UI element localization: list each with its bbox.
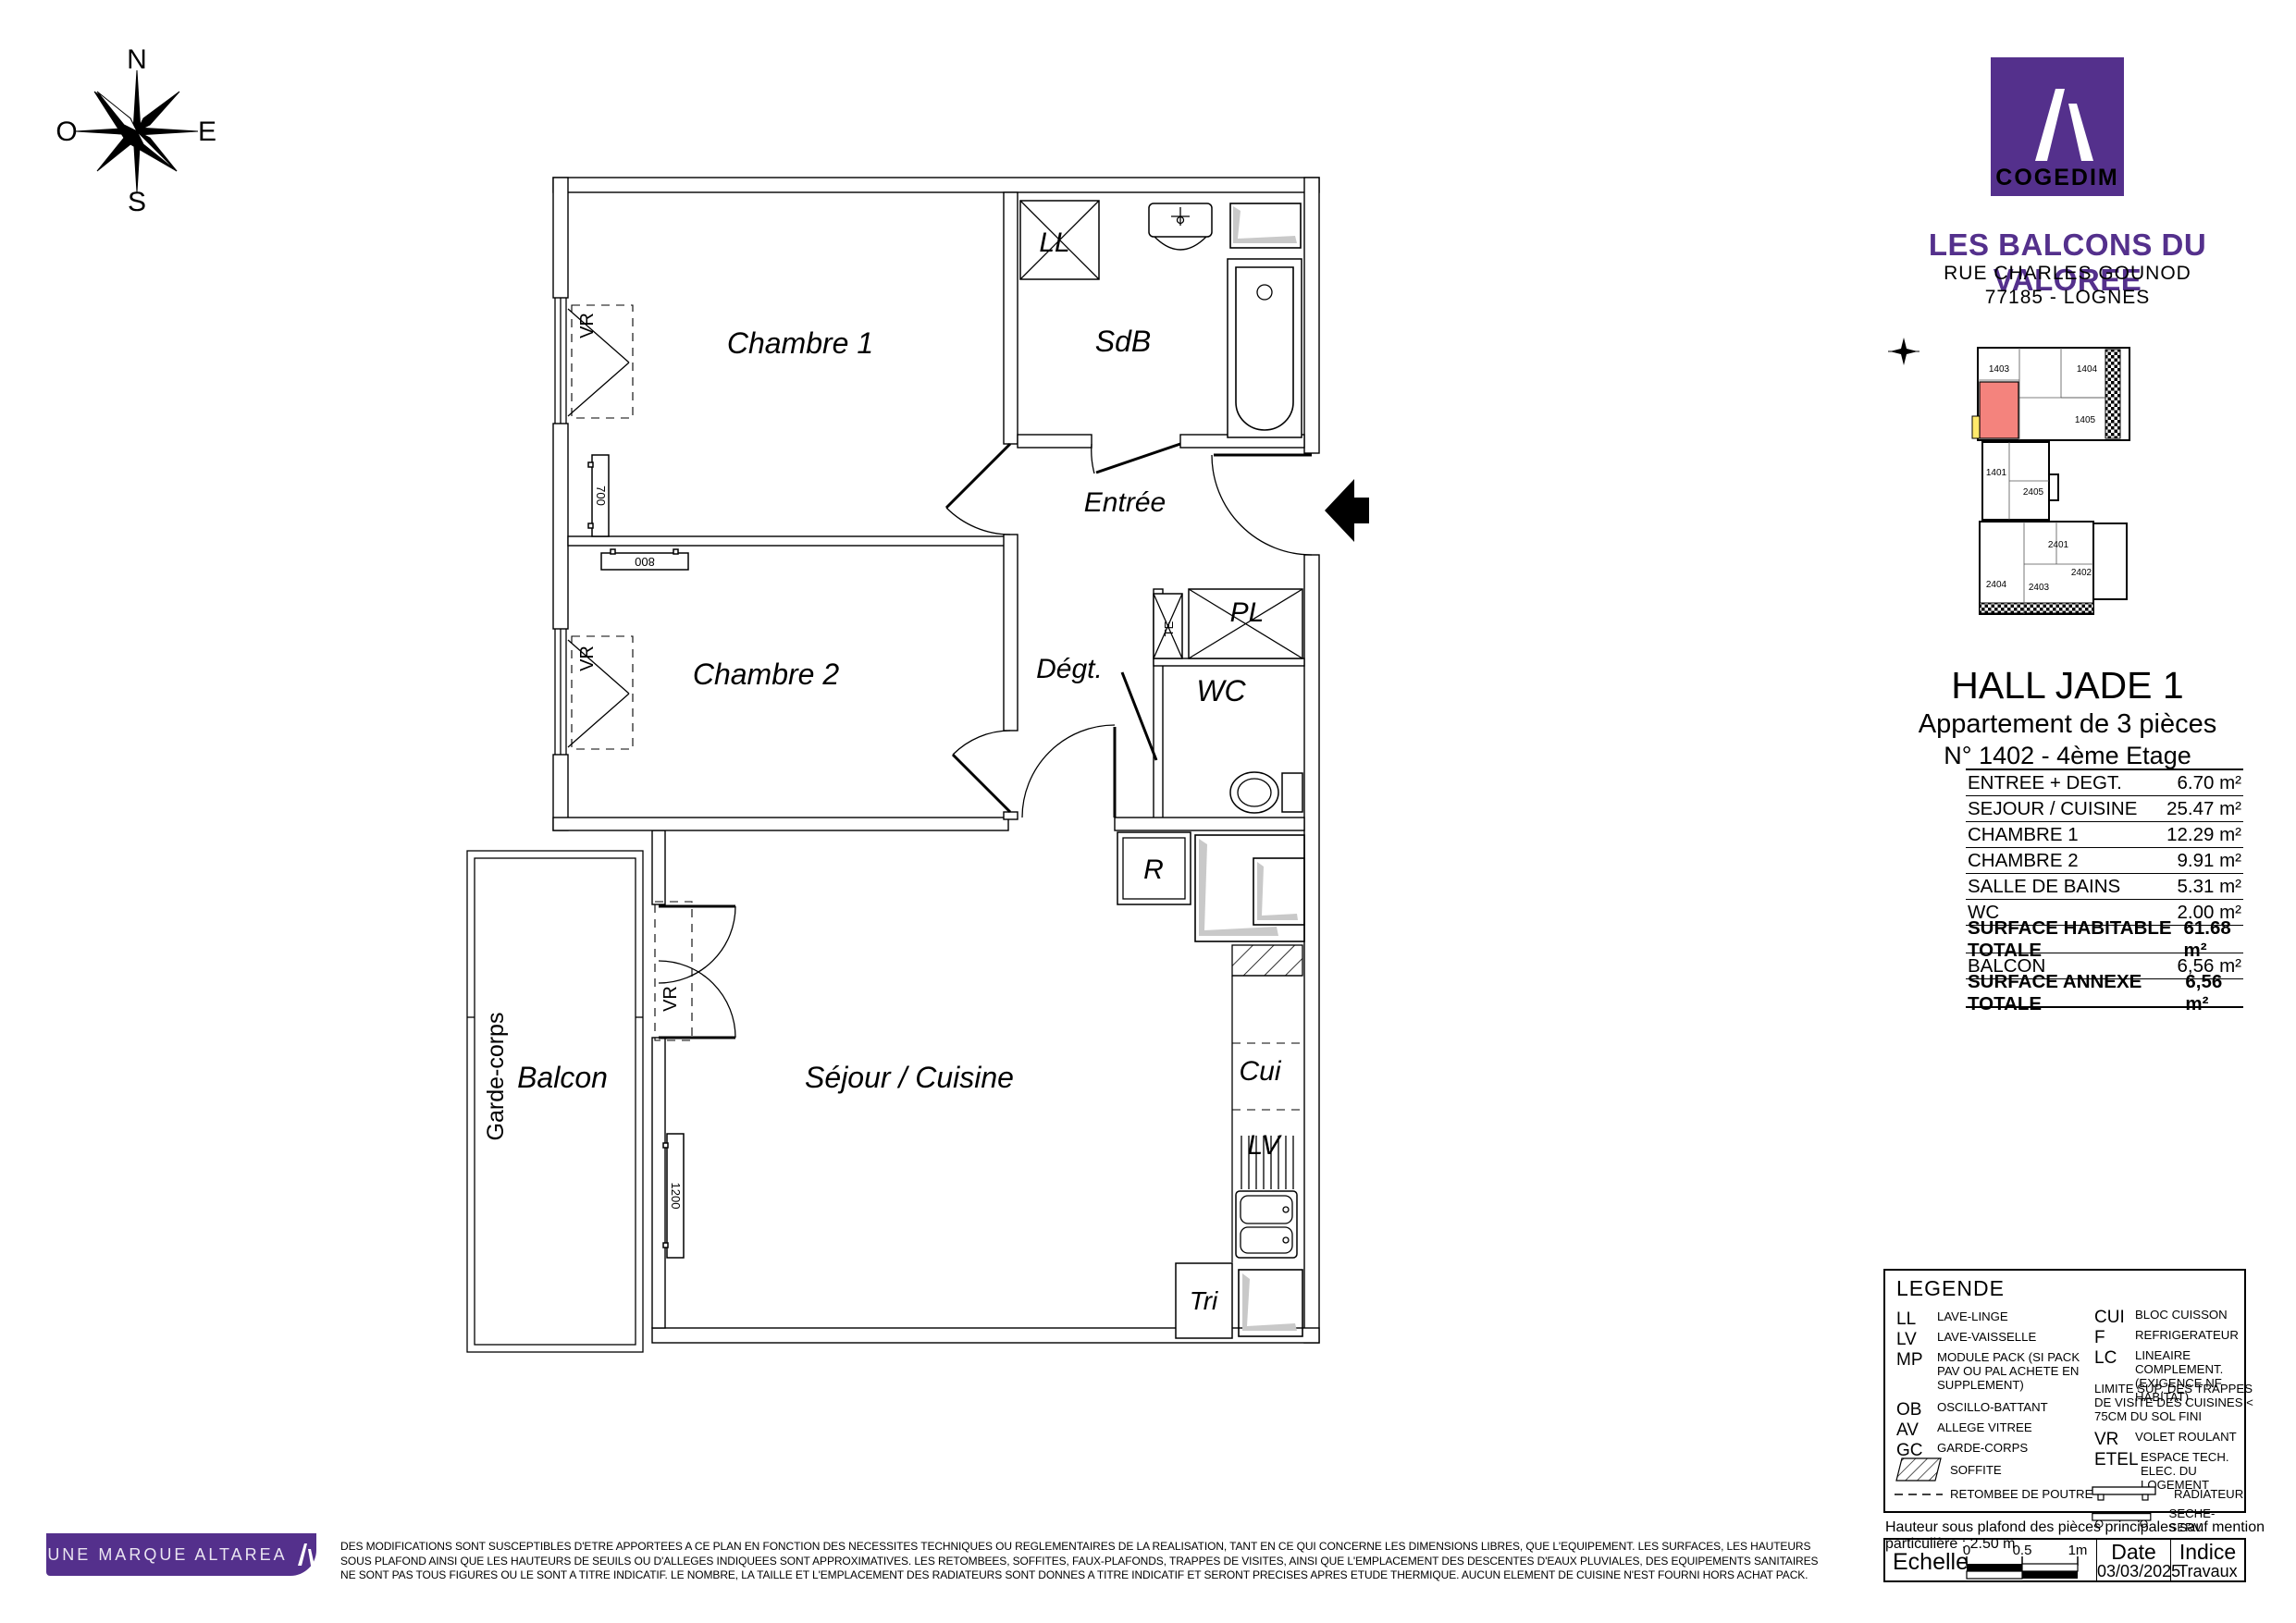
soffit-hatch [1232, 945, 1302, 976]
room-sdb-label: SdB [1095, 325, 1151, 358]
locator-balcony-strip-right [2105, 350, 2120, 438]
compass-south-label: S [128, 187, 146, 215]
row-value: 5.31 m² [2178, 876, 2242, 898]
indice-label: Indice [2171, 1541, 2244, 1563]
locator-unit-2402: 2402 [2071, 568, 2092, 578]
floor-plan-sheet: N E S O [0, 0, 2296, 1623]
legend-desc: REFRIGERATEUR [2135, 1328, 2239, 1348]
compass-east-label: E [198, 117, 216, 147]
disclaimer-line-2: SOUS PLAFOND AINSI QUE LES HAUTEURS DE S… [340, 1555, 1818, 1569]
legend-abbr: F [2094, 1328, 2135, 1348]
beam-dashed-line-icon [1895, 1490, 1943, 1499]
legend-abbr: MP [1896, 1350, 1937, 1392]
cogedim-logo-text: COGEDIM [1995, 165, 2118, 191]
row-label: CHAMBRE 2 [1968, 850, 2079, 872]
row-label: ENTREE + DEGT. [1968, 772, 2122, 794]
row-label: CHAMBRE 1 [1968, 824, 2079, 846]
interior-walls [568, 192, 1304, 830]
legend-item: OB OSCILLO-BATTANT [1896, 1400, 2048, 1420]
soffite-hatch-icon [1895, 1456, 1943, 1483]
row-label: SURFACE ANNEXE TOTALE [1968, 971, 2185, 1015]
row-value: 6,56 m² [2185, 971, 2241, 1015]
brand-banner-text: UNE MARQUE ALTAREA [47, 1545, 287, 1565]
project-address-line1: RUE CHARLES GOUNOD [1873, 263, 2262, 285]
etel-shaft [1195, 835, 1304, 941]
legend-title: LEGENDE [1896, 1276, 2005, 1301]
project-address-line2: 77185 - LOGNES [1873, 287, 2262, 309]
scale-tick-1m: 1m [2068, 1543, 2088, 1558]
radiator-icon [2091, 1485, 2159, 1502]
locator-balcony-strip-bottom [1980, 603, 2093, 613]
storage-r: R [1117, 832, 1191, 904]
row-value: 9.91 m² [2178, 850, 2242, 872]
locator-highlighted-unit-1402 [1980, 382, 2018, 438]
legend-abbr: AV [1896, 1420, 1937, 1441]
legend-desc: RETOMBEE DE POUTRE [1950, 1487, 2092, 1501]
title-block: Echelle 0 0.5 1m Date 03/03/2025 Indice … [1883, 1538, 2246, 1582]
date-label: Date [2097, 1541, 2170, 1563]
washing-machine: LL [1020, 201, 1099, 279]
compass-rose-icon: N E S O [54, 48, 220, 215]
legend-desc: MODULE PACK (SI PACK PAV OU PAL ACHETE E… [1937, 1350, 2094, 1392]
legend-item: LV LAVE-VAISSELLE [1896, 1330, 2036, 1350]
radiator-1200-label: 1200 [669, 1183, 683, 1210]
row-label: SEJOUR / CUISINE [1968, 798, 2137, 820]
toilet [1230, 772, 1302, 813]
altarea-brand-banner: UNE MARQUE ALTAREA [46, 1533, 316, 1576]
legend-desc: SOFFITE [1950, 1463, 2002, 1477]
locator-unit-1405: 1405 [2075, 415, 2096, 425]
room-wc-label: WC [1196, 674, 1246, 707]
indice-cell: Indice Travaux [2171, 1540, 2244, 1580]
legend-desc: LAVE-LINGE [1937, 1309, 2008, 1330]
indice-value: Travaux [2171, 1563, 2244, 1580]
room-sejour-label: Séjour / Cuisine [805, 1061, 1014, 1094]
entrance-marker: N°1402 [1325, 479, 1369, 542]
compass-north-label: N [127, 48, 147, 75]
legend-desc: ALLEGE VITREE [1937, 1420, 2032, 1441]
radiator-800: 800 [601, 549, 688, 570]
room-chambre1-label: Chambre 1 [727, 326, 873, 360]
room-degt-label: Dégt. [1036, 654, 1103, 684]
locator-highlighted-balcony [1972, 416, 1980, 438]
legend-abbr: OB [1896, 1400, 1937, 1420]
table-row: CHAMBRE 2 9.91 m² [1966, 848, 2243, 874]
legend-item: MP MODULE PACK (SI PACK PAV OU PAL ACHET… [1896, 1350, 2096, 1392]
storage-r-label: R [1143, 855, 1164, 885]
surface-table: ENTREE + DEGT. 6.70 m² SEJOUR / CUISINE … [1966, 768, 2243, 1008]
room-chambre2-label: Chambre 2 [693, 658, 840, 691]
locator-unit-1404: 1404 [2077, 364, 2098, 375]
legend-item-soffite: SOFFITE [1895, 1456, 2002, 1483]
date-value: 03/03/2025 [2097, 1563, 2170, 1580]
scale-tick-05: 0.5 [2013, 1543, 2032, 1558]
cogedim-logo: COGEDIM [1991, 57, 2124, 196]
radiator-700-label: 700 [594, 486, 608, 506]
legend-item: LL LAVE-LINGE [1896, 1309, 2008, 1330]
scale-cell: Echelle 0 0.5 1m [1885, 1540, 2097, 1580]
date-cell: Date 03/03/2025 [2097, 1540, 2171, 1580]
locator-unit-2403: 2403 [2029, 583, 2050, 593]
table-row-total-habitable: SURFACE HABITABLE TOTALE 61.68 m² [1966, 926, 2243, 953]
row-value: 6.70 m² [2178, 772, 2242, 794]
duct-te-label: TE [1162, 621, 1176, 636]
tri-label: Tri [1190, 1286, 1218, 1315]
legend-abbr: LL [1896, 1309, 1937, 1330]
table-row: CHAMBRE 1 12.29 m² [1966, 822, 2243, 848]
window-vr-chambre2: VR [555, 629, 633, 755]
legend-note: LIMITE SUP. DES TRAPPES DE VISITE DES CU… [2094, 1382, 2263, 1423]
soffit-corner-sdb [1230, 203, 1301, 248]
legend-abbr: LV [1896, 1330, 1937, 1350]
locator-unit-2401: 2401 [2048, 540, 2069, 550]
compass-west-label: O [56, 117, 77, 147]
hall-name: HALL JADE 1 [1873, 664, 2262, 707]
kitchen-cui-label: Cui [1239, 1056, 1281, 1087]
closet-pl-label: PL [1230, 597, 1265, 628]
table-row: SEJOUR / CUISINE 25.47 m² [1966, 796, 2243, 822]
bathtub [1228, 259, 1302, 437]
legend-item: VR VOLET ROULANT [2094, 1430, 2237, 1450]
room-entree-label: Entrée [1084, 487, 1166, 518]
disclaimer-line-3: NE SONT PAS TOUS FIGURES OU LE SONT A TI… [340, 1568, 1818, 1583]
garde-corps-label: Garde-corps [483, 1013, 509, 1141]
table-row: SALLE DE BAINS 5.31 m² [1966, 874, 2243, 900]
legend-abbr: VR [2094, 1430, 2135, 1450]
altarea-a-icon: COGEDIM [1991, 57, 2124, 196]
apartment-unit-line: N° 1402 - 4ème Etage [1873, 742, 2262, 770]
legend-item: F REFRIGERATEUR [2094, 1328, 2239, 1348]
closet-pl: PL [1189, 589, 1302, 658]
locator-unit-1401: 1401 [1986, 468, 2007, 478]
apartment-floor-plan: VR VR 700 800 1200 [453, 97, 1369, 1383]
vr-label-1: VR [577, 313, 598, 338]
legend-abbr: CUI [2094, 1308, 2135, 1328]
row-value: 25.47 m² [2166, 798, 2241, 820]
washbasin [1149, 203, 1212, 250]
radiator-1200: 1200 [663, 1134, 684, 1258]
tri-box: Tri [1176, 1263, 1302, 1338]
window-vr-chambre1: VR [555, 298, 633, 424]
entrance-arrow-icon [1325, 479, 1369, 542]
legend-desc: RADIATEUR [2174, 1487, 2243, 1501]
locator-unit-2405: 2405 [2023, 487, 2044, 498]
altarea-a-small-icon [297, 1543, 315, 1567]
radiator-800-label: 800 [635, 555, 655, 569]
apartment-type: Appartement de 3 pièces [1873, 709, 2262, 740]
legend-item: AV ALLEGE VITREE [1896, 1420, 2032, 1441]
room-balcon-label: Balcon [517, 1061, 608, 1094]
radiator-700: 700 [588, 455, 609, 536]
legend-item-retombee: RETOMBEE DE POUTRE [1895, 1487, 2092, 1501]
row-value: 12.29 m² [2166, 824, 2241, 846]
legend: LEGENDE LL LAVE-LINGE LV LAVE-VAISSELLE … [1883, 1269, 2246, 1513]
legend-desc: OSCILLO-BATTANT [1937, 1400, 2048, 1420]
scale-bar: 0 0.5 1m [1957, 1542, 2094, 1582]
legend-desc: BLOC CUISSON [2135, 1308, 2228, 1328]
balcony-door: VR [655, 902, 735, 1040]
scale-tick-0: 0 [1963, 1543, 1970, 1558]
disclaimer-text: DES MODIFICATIONS SONT SUSCEPTIBLES D'ET… [340, 1540, 1818, 1583]
apartment-heading: HALL JADE 1 Appartement de 3 pièces N° 1… [1873, 664, 2262, 770]
locator-unit-1403: 1403 [1989, 364, 2010, 375]
kitchen-counter: Cui LV [1232, 945, 1302, 1262]
row-label: SALLE DE BAINS [1968, 876, 2120, 898]
locator-unit-2404: 2404 [1986, 580, 2007, 590]
legend-desc: VOLET ROULANT [2135, 1430, 2237, 1450]
legend-item-radiateur: RADIATEUR [2091, 1485, 2243, 1502]
vr-label-2: VR [577, 646, 598, 671]
legend-desc: LAVE-VAISSELLE [1937, 1330, 2036, 1350]
duct-te: TE [1154, 594, 1182, 658]
table-row-total-annexe: SURFACE ANNEXE TOTALE 6,56 m² [1966, 979, 2243, 1008]
locator-star-icon [1887, 335, 1920, 368]
building-locator-plan: 1403 1404 1405 1401 2405 2401 2402 2404 … [1969, 342, 2135, 620]
kitchen-lv-label: LV [1247, 1130, 1282, 1161]
vr-label-3: VR [660, 986, 681, 1012]
washing-machine-label: LL [1039, 227, 1069, 258]
table-row: ENTREE + DEGT. 6.70 m² [1966, 770, 2243, 796]
legend-item: CUI BLOC CUISSON [2094, 1308, 2228, 1328]
disclaimer-line-1: DES MODIFICATIONS SONT SUSCEPTIBLES D'ET… [340, 1540, 1818, 1555]
